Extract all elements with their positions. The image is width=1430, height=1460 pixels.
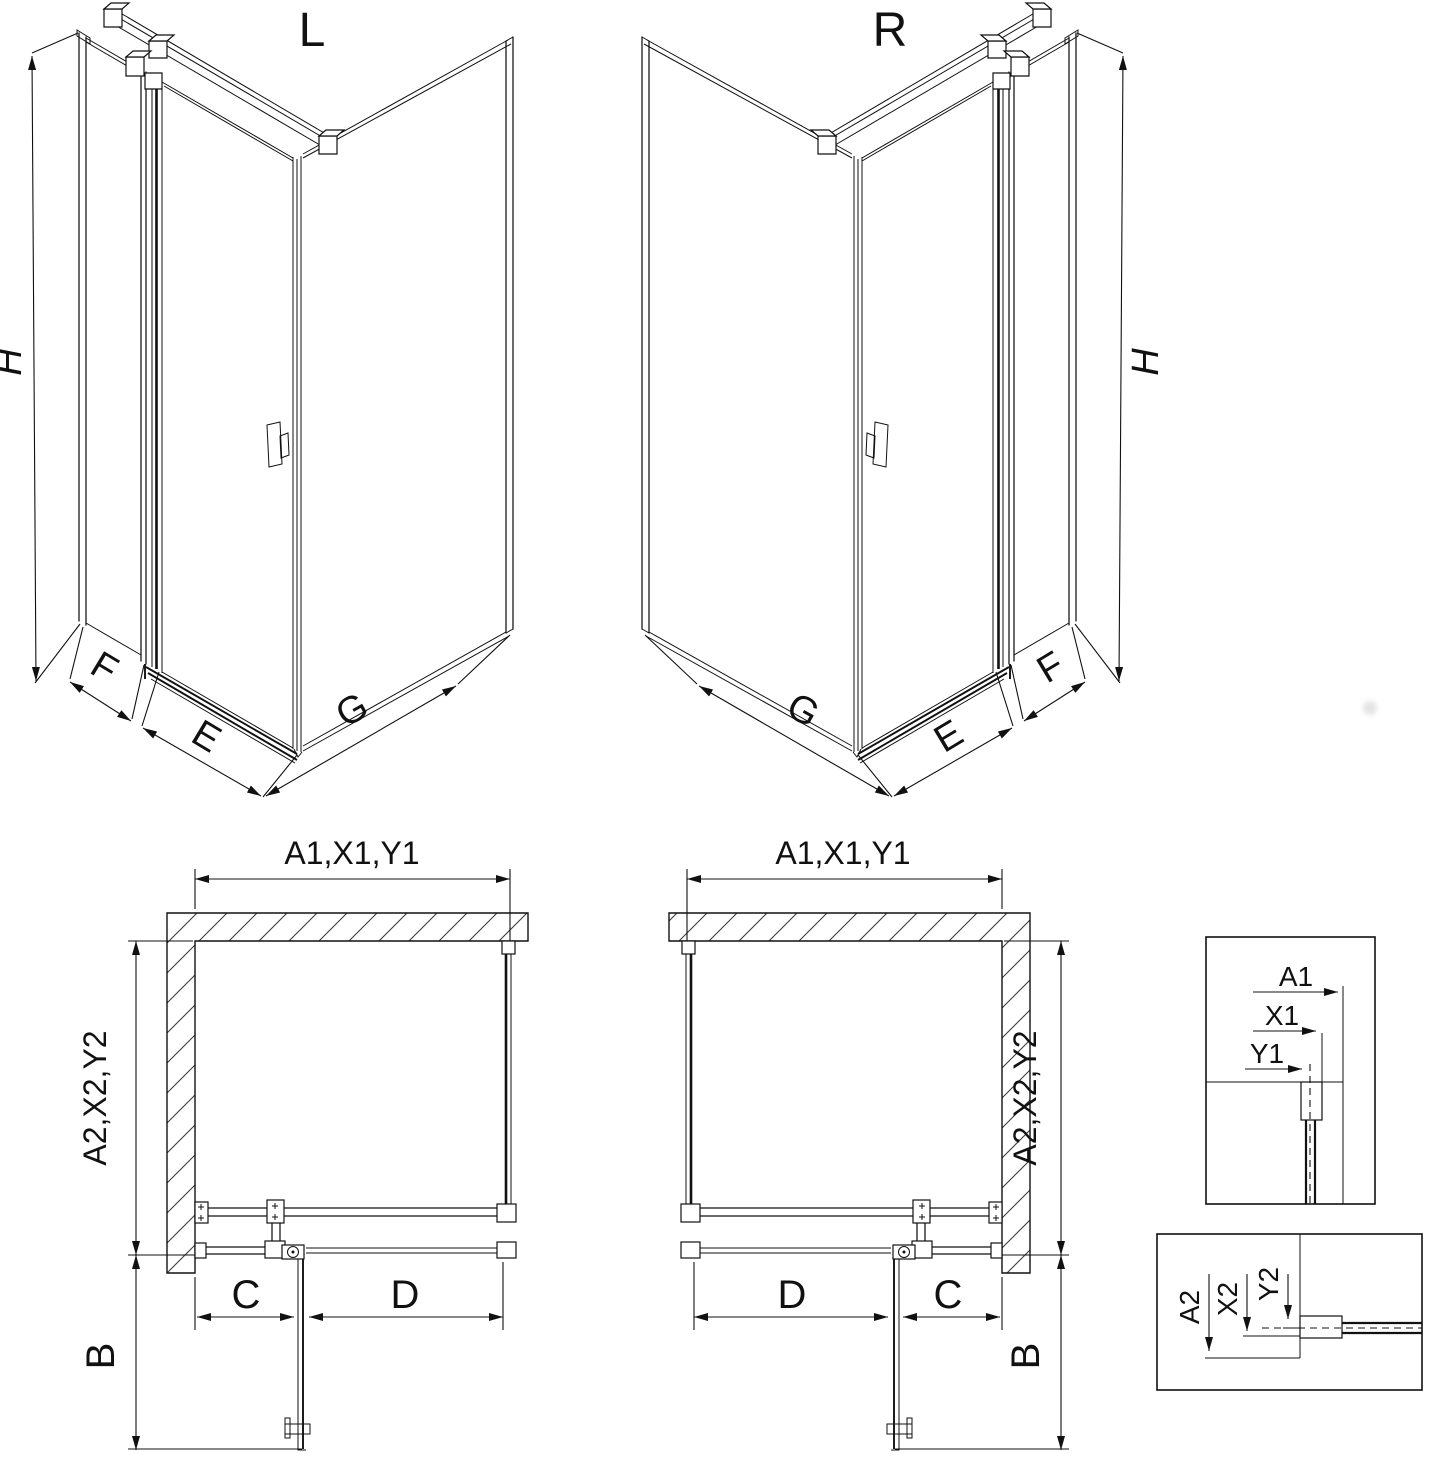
detail-width-x1-label: X1: [1265, 1000, 1299, 1031]
side-panel-dimension: [266, 635, 510, 796]
detail-depth-a2-label: A2: [1174, 1290, 1205, 1324]
plan-left-b-label: B: [79, 1343, 123, 1370]
plan-right-b-label: B: [1004, 1343, 1048, 1370]
detail-width-a1-label: A1: [1279, 961, 1313, 992]
wall-hatch-left: [167, 913, 528, 1273]
iso-right-g-label: G: [780, 685, 826, 736]
detail-box-depth: A2 X2 Y2: [1157, 1234, 1422, 1390]
iso-right-f-label: F: [1030, 644, 1072, 692]
plan-view-right: A1,X1,Y1 A2,X2,Y2 D C B: [669, 835, 1069, 1450]
iso-left-title: L: [299, 4, 326, 57]
detail-depth-x2-label: X2: [1212, 1282, 1243, 1316]
detail-depth-y2-label: Y2: [1253, 1267, 1284, 1301]
plan-right-d-label: D: [778, 1273, 807, 1317]
iso-left-height-label: H: [0, 348, 30, 376]
iso-left-f-label: F: [83, 644, 125, 692]
wall-hatch-right: [669, 913, 1030, 1273]
plan-left-c-label: C: [232, 1273, 261, 1317]
open-door: [285, 1259, 310, 1450]
iso-view-right: R H F E G: [642, 3, 1167, 797]
plan-left-width-label: A1,X1,Y1: [284, 835, 419, 871]
iso-left-g-label: G: [329, 685, 375, 736]
plan-left-d-label: D: [391, 1273, 420, 1317]
plan-left-depth-label: A2,X2,Y2: [77, 1030, 113, 1165]
watermark-dot: [1363, 701, 1377, 715]
iso-right-height-label: H: [1125, 348, 1167, 376]
detail-width-y1-label: Y1: [1250, 1038, 1284, 1069]
plan-view-left: A1,X1,Y1 A2,X2,Y2 C D B: [77, 835, 528, 1450]
height-dimension: [32, 33, 80, 683]
iso-view-left: L H F E G: [0, 3, 513, 797]
plan-right-width-label: A1,X1,Y1: [775, 835, 910, 871]
plan-right-depth-label: A2,X2,Y2: [1007, 1030, 1043, 1165]
door-handle-icon: [267, 422, 289, 467]
detail-box-width: A1 X1 Y1: [1206, 937, 1375, 1204]
iso-right-title: R: [873, 4, 908, 57]
plan-right-c-label: C: [934, 1273, 963, 1317]
technical-drawing-sheet: L H F E G R H F E G: [0, 0, 1430, 1460]
